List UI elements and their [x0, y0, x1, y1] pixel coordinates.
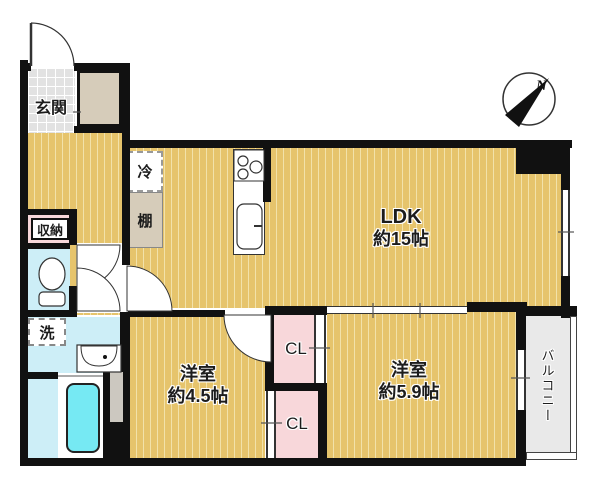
door-swing-zone — [77, 243, 122, 313]
wall — [263, 148, 271, 202]
wall — [265, 306, 274, 390]
duct-pillar — [110, 372, 123, 422]
balcony-railing-right — [570, 316, 577, 460]
entrance-label: 玄関 — [35, 94, 67, 118]
closet-upper-door — [314, 315, 326, 383]
kitchen-counter — [233, 149, 265, 255]
ldk-window — [561, 190, 570, 276]
bedroom-small-label: 洋室 約4.5帖 — [167, 363, 228, 407]
wall — [20, 63, 31, 71]
wall — [122, 63, 130, 148]
wall — [105, 420, 130, 458]
toilet-room — [27, 249, 70, 310]
ldk-area: 約15帖 — [373, 228, 429, 250]
floor-plan: N 玄関 収納 洗 冷 棚 LDK 約15帖 洋室 約4.5帖 洋室 約5.9帖… — [0, 0, 600, 483]
fridge-label: 冷 — [127, 151, 163, 192]
wall — [318, 383, 327, 463]
bedroom-small-name: 洋室 — [167, 363, 228, 385]
closet-lower-label: CL — [286, 414, 308, 434]
wall — [20, 60, 28, 466]
ldk-bedroom-partition — [327, 306, 467, 314]
ldk-floor — [130, 148, 561, 308]
wall — [128, 140, 572, 148]
wall — [69, 209, 77, 245]
compass-north-label: N — [535, 78, 548, 94]
laundry-label: 洗 — [28, 318, 66, 346]
wall — [516, 410, 526, 458]
wall — [265, 306, 327, 315]
laundry-label-text: 洗 — [39, 322, 54, 343]
wall — [24, 243, 70, 249]
storage-label: 収納 — [31, 218, 69, 240]
ldk-name: LDK — [373, 206, 429, 228]
bedroom-small-area: 約4.5帖 — [167, 385, 228, 407]
bedroom-large-name: 洋室 — [378, 359, 439, 381]
storage-label-text: 収納 — [37, 220, 63, 239]
wall — [561, 148, 570, 190]
wall — [128, 310, 225, 317]
balcony-window — [516, 350, 526, 410]
wall — [516, 306, 526, 350]
shelf-label-text: 棚 — [137, 210, 152, 231]
balcony-railing-bottom — [526, 452, 577, 460]
shoe-cabinet — [77, 70, 122, 127]
entrance-door-icon — [31, 23, 74, 66]
wall — [74, 126, 122, 133]
shelf-label: 棚 — [127, 192, 163, 248]
bathtub — [66, 383, 100, 453]
bedroom-large-area: 約5.9帖 — [378, 381, 439, 403]
compass-icon: N — [503, 73, 555, 127]
closet-lower-door — [266, 391, 276, 458]
wall — [20, 458, 526, 466]
bedroom-large-label: 洋室 約5.9帖 — [378, 359, 439, 403]
closet-upper-label: CL — [285, 339, 307, 359]
wall — [20, 310, 77, 317]
fridge-label-text: 冷 — [137, 161, 152, 182]
balcony-label: バルコニー — [538, 349, 557, 424]
wall — [20, 372, 58, 379]
ldk-label: LDK 約15帖 — [373, 206, 429, 250]
